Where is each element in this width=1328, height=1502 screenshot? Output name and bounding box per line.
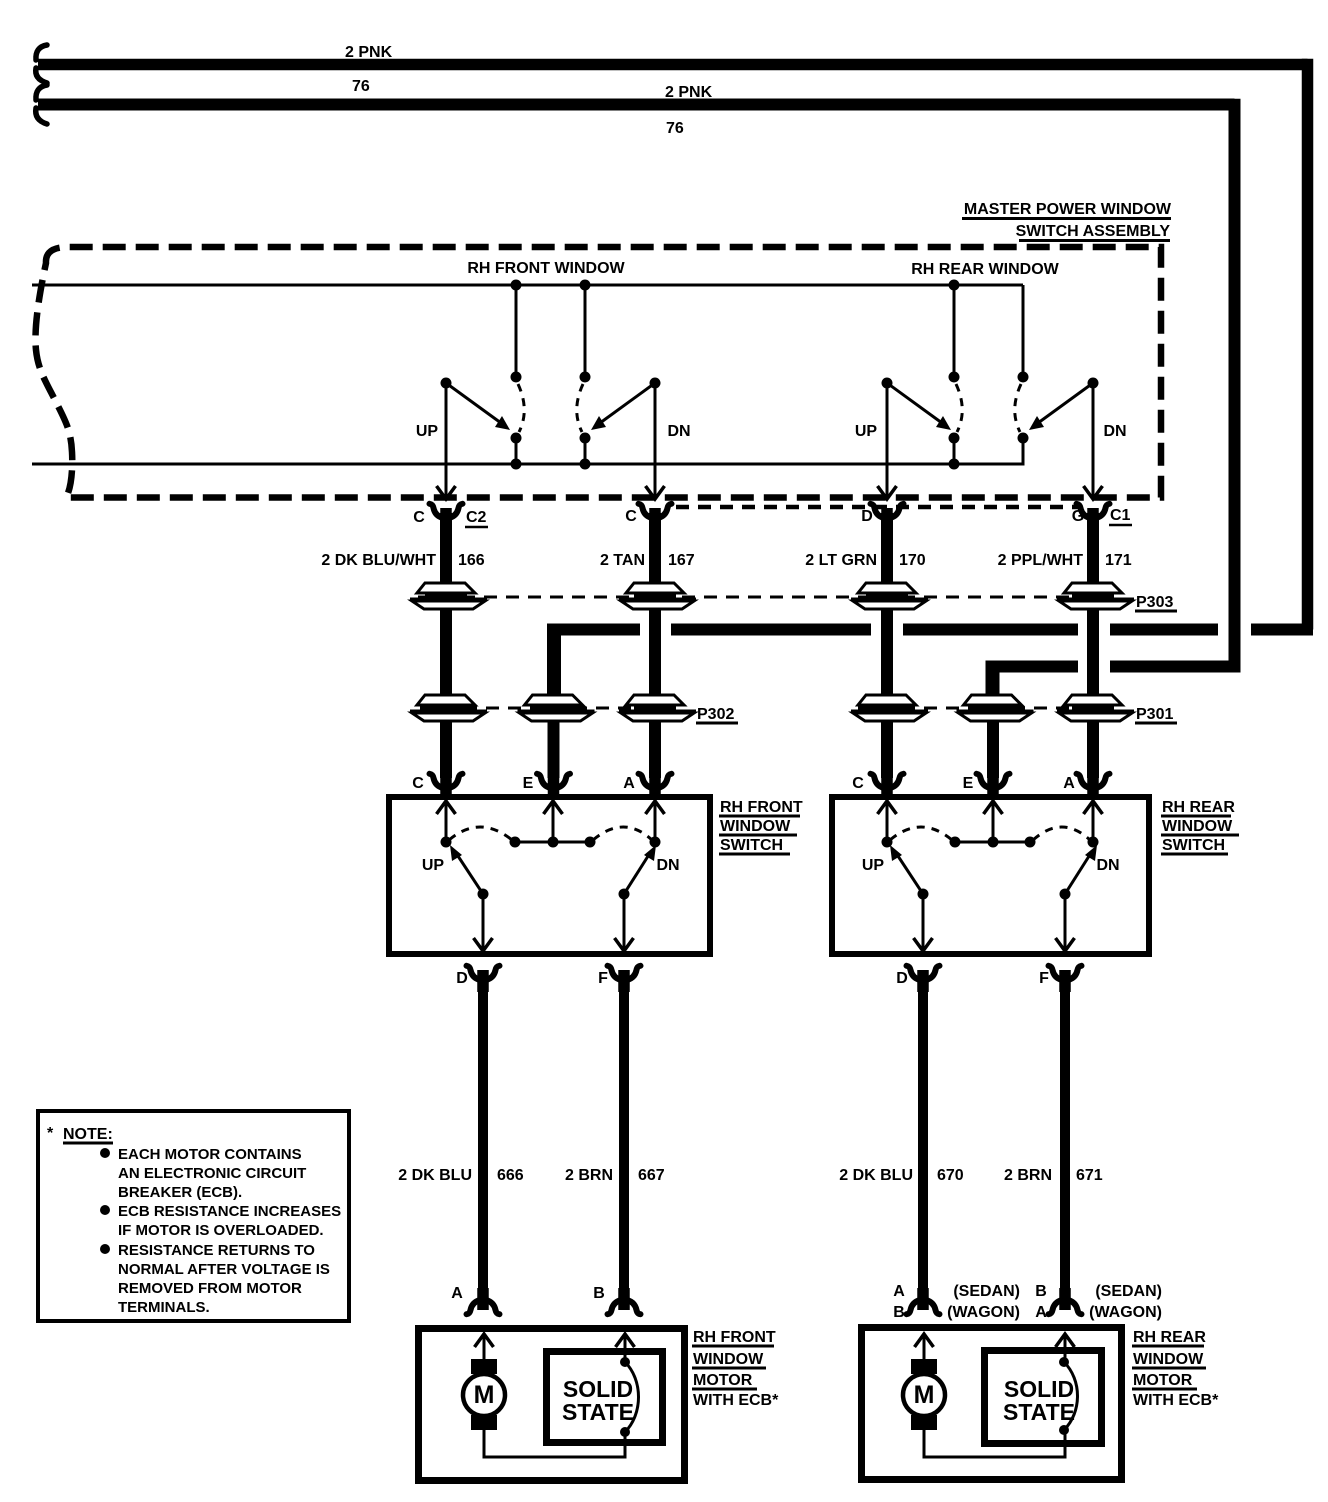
svg-text:M: M [474, 1381, 495, 1409]
svg-text:D: D [896, 970, 908, 987]
svg-text:TERMINALS.: TERMINALS. [118, 1299, 210, 1316]
svg-text:C1: C1 [1110, 507, 1131, 524]
svg-text:RH REAR: RH REAR [1162, 799, 1235, 816]
svg-text:167: 167 [668, 552, 695, 569]
svg-text:(SEDAN): (SEDAN) [1095, 1283, 1162, 1300]
svg-text:E: E [523, 775, 534, 792]
svg-text:F: F [598, 970, 608, 987]
svg-text:P301: P301 [1136, 706, 1173, 723]
svg-text:C2: C2 [466, 509, 487, 526]
svg-text:671: 671 [1076, 1167, 1103, 1184]
svg-text:76: 76 [666, 120, 684, 137]
svg-text:SWITCH: SWITCH [1162, 837, 1225, 854]
svg-text:DN: DN [1103, 423, 1126, 440]
svg-text:A: A [623, 775, 635, 792]
svg-text:171: 171 [1105, 552, 1132, 569]
svg-text:170: 170 [899, 552, 926, 569]
svg-text:2 PNK: 2 PNK [665, 84, 713, 101]
svg-text:STATE: STATE [1003, 1399, 1075, 1425]
svg-text:C: C [852, 775, 864, 792]
svg-text:WITH ECB*: WITH ECB* [1133, 1392, 1219, 1409]
svg-text:UP: UP [422, 857, 445, 874]
svg-text:WINDOW: WINDOW [1133, 1351, 1204, 1368]
svg-text:2 DK BLU: 2 DK BLU [839, 1167, 913, 1184]
svg-text:G: G [1072, 508, 1084, 525]
svg-text:A: A [451, 1285, 463, 1302]
svg-text:MASTER POWER WINDOW: MASTER POWER WINDOW [964, 201, 1172, 218]
svg-text:A: A [1063, 775, 1075, 792]
svg-text:AN ELECTRONIC CIRCUIT: AN ELECTRONIC CIRCUIT [118, 1165, 306, 1182]
svg-text:MOTOR: MOTOR [693, 1372, 753, 1389]
svg-text:UP: UP [416, 423, 439, 440]
svg-text:D: D [861, 508, 873, 525]
svg-text:(SEDAN): (SEDAN) [953, 1283, 1020, 1300]
svg-text:76: 76 [352, 78, 370, 95]
svg-text:WITH ECB*: WITH ECB* [693, 1392, 779, 1409]
svg-text:2 BRN: 2 BRN [1004, 1167, 1052, 1184]
svg-text:UP: UP [862, 857, 885, 874]
svg-text:WINDOW: WINDOW [720, 818, 791, 835]
svg-text:P302: P302 [697, 706, 734, 723]
svg-text:*: * [47, 1125, 54, 1142]
svg-text:MOTOR: MOTOR [1133, 1372, 1193, 1389]
svg-text:BREAKER (ECB).: BREAKER (ECB). [118, 1184, 242, 1201]
svg-text:166: 166 [458, 552, 485, 569]
svg-text:2 BRN: 2 BRN [565, 1167, 613, 1184]
svg-text:B: B [1035, 1283, 1047, 1300]
svg-text:NORMAL AFTER VOLTAGE IS: NORMAL AFTER VOLTAGE IS [118, 1261, 330, 1278]
svg-text:RH FRONT: RH FRONT [720, 799, 803, 816]
svg-text:A: A [1035, 1304, 1047, 1321]
svg-text:EACH MOTOR CONTAINS: EACH MOTOR CONTAINS [118, 1146, 302, 1163]
svg-text:RH FRONT WINDOW: RH FRONT WINDOW [467, 260, 625, 277]
svg-text:RESISTANCE RETURNS TO: RESISTANCE RETURNS TO [118, 1242, 315, 1259]
svg-text:M: M [914, 1381, 935, 1409]
svg-text:RH REAR WINDOW: RH REAR WINDOW [911, 261, 1059, 278]
svg-text:B: B [593, 1285, 605, 1302]
svg-text:STATE: STATE [562, 1399, 634, 1425]
svg-text:(WAGON): (WAGON) [1089, 1304, 1162, 1321]
svg-text:UP: UP [855, 423, 878, 440]
svg-text:ECB RESISTANCE INCREASES: ECB RESISTANCE INCREASES [118, 1203, 341, 1220]
svg-text:RH REAR: RH REAR [1133, 1329, 1206, 1346]
svg-text:SWITCH ASSEMBLY: SWITCH ASSEMBLY [1016, 223, 1171, 240]
svg-text:C: C [412, 775, 424, 792]
svg-text:2 DK BLU: 2 DK BLU [398, 1167, 472, 1184]
svg-text:DN: DN [1096, 857, 1119, 874]
svg-text:DN: DN [667, 423, 690, 440]
svg-text:2 LT GRN: 2 LT GRN [805, 552, 877, 569]
svg-text:(WAGON): (WAGON) [947, 1304, 1020, 1321]
svg-text:667: 667 [638, 1167, 665, 1184]
svg-text:C: C [413, 509, 425, 526]
svg-text:RH FRONT: RH FRONT [693, 1329, 776, 1346]
svg-text:666: 666 [497, 1167, 524, 1184]
svg-text:IF MOTOR IS OVERLOADED.: IF MOTOR IS OVERLOADED. [118, 1222, 324, 1239]
svg-text:2 TAN: 2 TAN [600, 552, 645, 569]
svg-text:670: 670 [937, 1167, 964, 1184]
svg-text:2 DK BLU/WHT: 2 DK BLU/WHT [321, 552, 436, 569]
svg-text:C: C [625, 508, 637, 525]
svg-text:B: B [893, 1304, 905, 1321]
svg-text:NOTE:: NOTE: [63, 1126, 113, 1143]
svg-text:WINDOW: WINDOW [1162, 818, 1233, 835]
svg-text:SWITCH: SWITCH [720, 837, 783, 854]
svg-text:DN: DN [656, 857, 679, 874]
svg-text:2 PNK: 2 PNK [345, 44, 393, 61]
svg-text:A: A [893, 1283, 905, 1300]
svg-text:D: D [456, 970, 468, 987]
svg-text:P303: P303 [1136, 594, 1173, 611]
svg-text:E: E [963, 775, 974, 792]
svg-text:F: F [1039, 970, 1049, 987]
svg-text:2 PPL/WHT: 2 PPL/WHT [998, 552, 1084, 569]
svg-text:REMOVED FROM MOTOR: REMOVED FROM MOTOR [118, 1280, 302, 1297]
svg-text:WINDOW: WINDOW [693, 1351, 764, 1368]
